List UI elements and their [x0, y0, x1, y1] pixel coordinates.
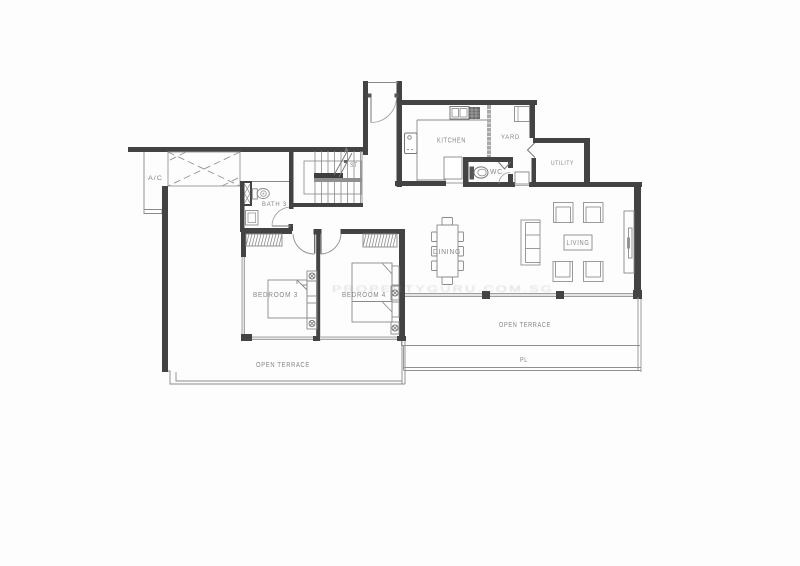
svg-text:WC: WC: [490, 169, 503, 176]
svg-text:ST: ST: [350, 163, 358, 169]
svg-text:A/C: A/C: [148, 175, 163, 182]
svg-text:KITCHEN: KITCHEN: [437, 136, 466, 145]
svg-text:PL: PL: [520, 357, 528, 364]
svg-text:LIVING: LIVING: [567, 238, 590, 247]
svg-text:DINING: DINING: [433, 247, 461, 256]
svg-text:PROPERTYGURU.COM.SG: PROPERTYGURU.COM.SG: [332, 284, 554, 295]
svg-text:OPEN TERRACE: OPEN TERRACE: [256, 360, 310, 369]
svg-text:UTILITY: UTILITY: [551, 160, 574, 167]
svg-text:YARD: YARD: [501, 134, 520, 141]
svg-text:BATH 3: BATH 3: [262, 201, 287, 208]
svg-text:OPEN TERRACE: OPEN TERRACE: [499, 320, 551, 329]
svg-text:BEDROOM 3: BEDROOM 3: [253, 290, 298, 299]
